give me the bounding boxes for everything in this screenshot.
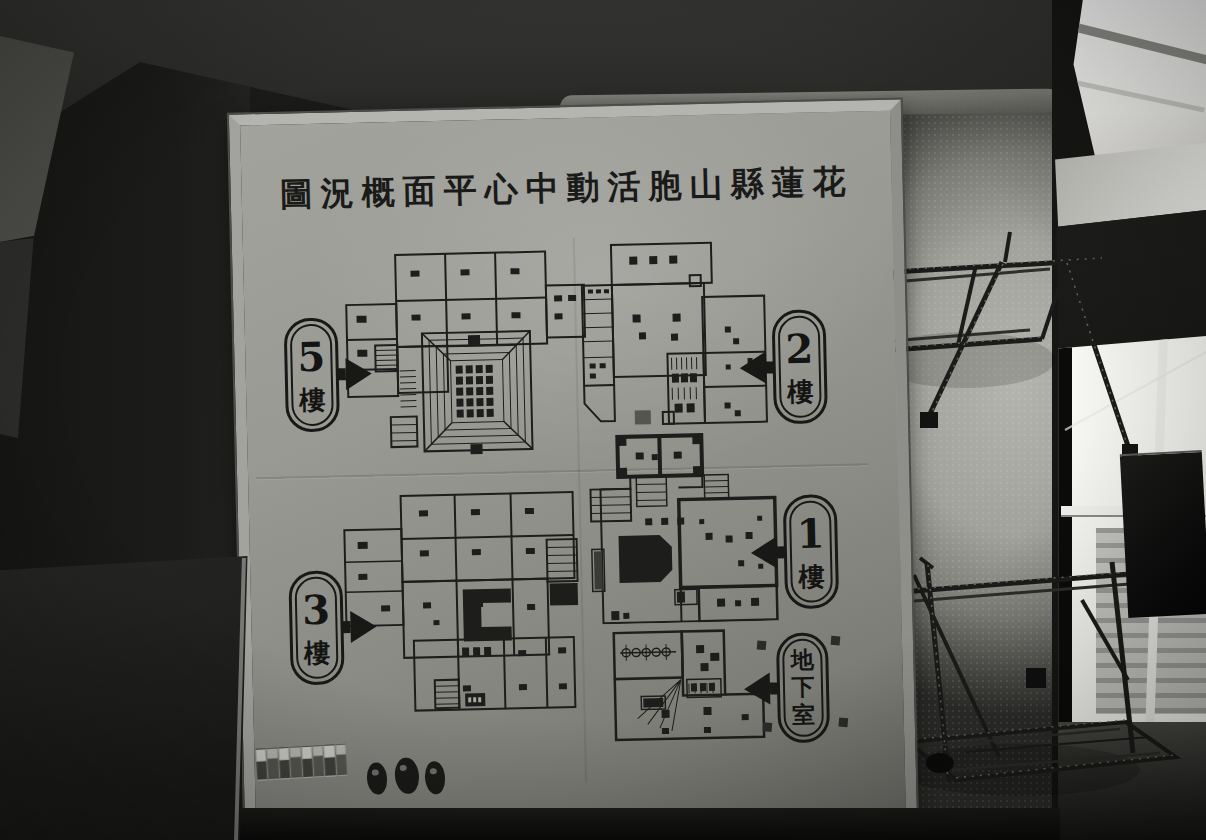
photo-thumb (324, 744, 336, 777)
arrow-right-icon (336, 358, 372, 391)
sticker-figure (367, 762, 388, 794)
photo-thumb (301, 746, 313, 779)
floor-label-3f: 3 樓 (288, 570, 345, 685)
photo-thumb (278, 747, 290, 780)
floor-plan-1f (585, 427, 781, 624)
photo-strip (256, 744, 348, 791)
upper-window-frame-bar (1063, 20, 1206, 65)
photo-thumb (335, 744, 347, 777)
arrow-left-icon (744, 672, 780, 705)
upper-window (1052, 0, 1206, 170)
room-photo: 圖況概面平心中動活胞山縣蓮花 (0, 0, 1206, 840)
floor-label-1f-ring: 1 樓 (789, 500, 833, 603)
floor-label-2f-ring: 2 樓 (778, 315, 822, 418)
upper-window-frame-bar2 (1057, 76, 1205, 112)
photo-thumb (256, 748, 268, 781)
floor-label-3f-suffix: 樓 (304, 640, 331, 667)
board-screw-dot (763, 722, 773, 732)
sticker-figure (395, 758, 420, 795)
floor-label-basement-text: 地下室 (791, 646, 816, 729)
sign-board-face: 圖況概面平心中動活胞山縣蓮花 (240, 111, 906, 828)
window-column (1052, 0, 1206, 840)
board-screw-dot (757, 640, 767, 650)
floor-label-2f-suffix: 樓 (787, 379, 814, 406)
floor-label-3f-number: 3 (302, 589, 331, 630)
floor-label-basement-ring: 地下室 (782, 638, 824, 737)
sticker-figure (425, 761, 446, 794)
photo-thumb (267, 748, 279, 781)
floor-label-5f-number: 5 (297, 336, 326, 377)
floor-label-basement: 地下室 (776, 632, 830, 743)
board-screw-dot (831, 636, 841, 646)
board-screw-dot (838, 718, 848, 728)
sign-board: 圖況概面平心中動活胞山縣蓮花 (229, 99, 917, 838)
photo-thumb (312, 745, 324, 778)
floor-label-5f-ring: 5 樓 (290, 323, 334, 426)
floor-label-1f-number: 1 (796, 513, 825, 554)
floor-label-1f: 1 樓 (783, 494, 840, 609)
board-title: 圖況概面平心中動活胞山縣蓮花 (241, 159, 892, 219)
arrow-left-icon (751, 536, 787, 569)
floor-label-5f: 5 樓 (284, 317, 341, 432)
floor-plan-3f (338, 487, 595, 716)
floor-label-2f: 2 樓 (771, 309, 828, 424)
floor-label-2f-number: 2 (785, 328, 814, 369)
floor-plan-5f (335, 244, 600, 465)
floor-label-3f-ring: 3 樓 (294, 576, 338, 679)
photo-thumb (290, 746, 302, 779)
floor-plan-2f (573, 234, 771, 430)
floor-label-1f-suffix: 樓 (798, 564, 825, 591)
window-bottom-shadow (1058, 722, 1206, 840)
leaning-panel (0, 556, 250, 840)
equipment-box (1120, 450, 1206, 618)
arrow-right-icon (341, 611, 377, 644)
floor-label-5f-suffix: 樓 (299, 387, 326, 414)
arrow-left-icon (739, 351, 775, 384)
